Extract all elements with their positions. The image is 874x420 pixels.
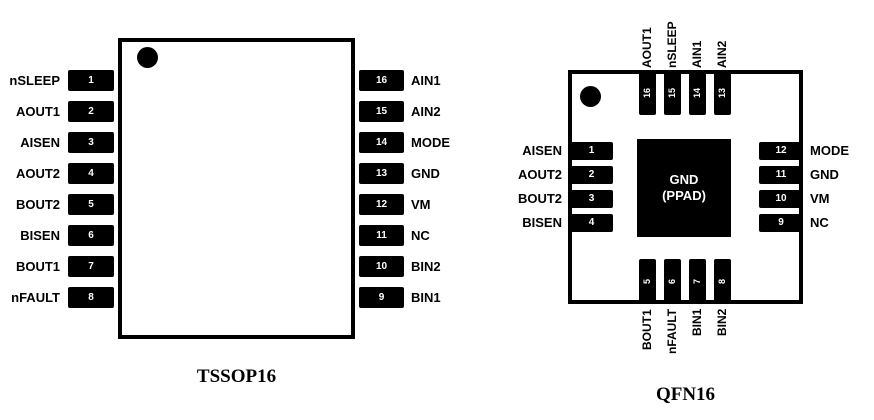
tssop-pin-10-box: 10: [359, 256, 404, 277]
tssop-pin-1-box: 1: [68, 70, 114, 91]
qfn-caption: QFN16: [568, 384, 803, 406]
qfn-pin-14-box: 14: [689, 71, 706, 115]
qfn-pin-9-box: 9: [759, 214, 803, 232]
tssop-pin-2-box: 2: [68, 101, 114, 122]
thermal-pad-line2: (PPAD): [662, 188, 706, 204]
qfn-pin-11-box: 11: [759, 166, 803, 184]
qfn-pin-4-label: BISEN: [460, 214, 562, 232]
tssop-pin-1-label: nSLEEP: [0, 70, 60, 91]
tssop-pin-2-label: AOUT1: [0, 101, 60, 122]
tssop-pin-7-label: BOUT1: [0, 256, 60, 277]
thermal-pad-line1: GND: [670, 172, 699, 188]
qfn-pin-15-box: 15: [664, 71, 681, 115]
qfn-pin-14-number: 14: [693, 88, 702, 98]
qfn-pin-14-label: AIN1: [689, 2, 706, 68]
tssop-pin-3-label: AISEN: [0, 132, 60, 153]
tssop-pin-9-label: BIN1: [411, 287, 441, 308]
qfn-pin-2-box: 2: [570, 166, 613, 184]
qfn-pin-5-label: BOUT1: [639, 309, 656, 381]
qfn-pin-9-label: NC: [810, 214, 829, 232]
tssop-pin-1-number: 1: [88, 76, 94, 86]
qfn-pin-8-box: 8: [714, 259, 731, 304]
tssop-pin-12-label: VM: [411, 194, 431, 215]
tssop-pin-13-number: 13: [376, 169, 387, 179]
tssop-pin-15-number: 15: [376, 107, 387, 117]
qfn-pin-16-box: 16: [639, 71, 656, 115]
qfn-pin-5-number: 5: [643, 279, 652, 284]
qfn-pin-11-label: GND: [810, 166, 839, 184]
tssop-pin-14-number: 14: [376, 138, 387, 148]
tssop-pin-16-label: AIN1: [411, 70, 441, 91]
qfn-pin-4-box: 4: [570, 214, 613, 232]
qfn-pin-2-label: AOUT2: [460, 166, 562, 184]
qfn-pin-1-label: AISEN: [460, 142, 562, 160]
qfn-pin-3-box: 3: [570, 190, 613, 208]
tssop-pin-11-box: 11: [359, 225, 404, 246]
tssop-pin-15-box: 15: [359, 101, 404, 122]
tssop-pin-6-label: BISEN: [0, 225, 60, 246]
tssop-pin-9-box: 9: [359, 287, 404, 308]
tssop-pin-4-number: 4: [88, 169, 94, 179]
qfn-pin-13-number: 13: [718, 88, 727, 98]
tssop-pin-11-label: NC: [411, 225, 430, 246]
qfn-pin-15-label: nSLEEP: [664, 2, 681, 68]
tssop-caption: TSSOP16: [118, 366, 355, 388]
qfn-pin-9-number: 9: [778, 218, 784, 228]
qfn-pin-16-number: 16: [643, 88, 652, 98]
qfn-pin-13-box: 13: [714, 71, 731, 115]
qfn-pin-3-number: 3: [589, 194, 595, 204]
tssop-pin-14-box: 14: [359, 132, 404, 153]
qfn-pin-10-label: VM: [810, 190, 830, 208]
qfn-pin-7-number: 7: [693, 279, 702, 284]
tssop-pin-12-box: 12: [359, 194, 404, 215]
qfn-pin-1-number: 1: [589, 146, 595, 156]
tssop-pin-3-box: 3: [68, 132, 114, 153]
qfn-pin-8-label: BIN2: [714, 309, 731, 381]
tssop-pin-2-number: 2: [88, 107, 94, 117]
tssop-pin-6-box: 6: [68, 225, 114, 246]
qfn-pin-16-label: AOUT1: [639, 2, 656, 68]
tssop-pin-13-box: 13: [359, 163, 404, 184]
tssop-pin-8-box: 8: [68, 287, 114, 308]
qfn-pin-7-label: BIN1: [689, 309, 706, 381]
tssop-pin-10-number: 10: [376, 262, 387, 272]
qfn-pin-11-number: 11: [776, 170, 787, 180]
tssop-pin-16-box: 16: [359, 70, 404, 91]
qfn-pin-3-label: BOUT2: [460, 190, 562, 208]
qfn-thermal-pad: GND (PPAD): [637, 139, 731, 237]
qfn-pin-15-number: 15: [668, 88, 677, 98]
qfn-pin-5-box: 5: [639, 259, 656, 304]
qfn-pin-6-box: 6: [664, 259, 681, 304]
qfn-pin-6-label: nFAULT: [664, 309, 681, 381]
tssop-pin-5-number: 5: [88, 200, 94, 210]
tssop-pin-3-number: 3: [88, 138, 94, 148]
qfn-pin-7-box: 7: [689, 259, 706, 304]
tssop-package-body: [118, 38, 355, 339]
tssop-pin-10-label: BIN2: [411, 256, 441, 277]
qfn-pin-10-number: 10: [775, 194, 786, 204]
qfn-pin-4-number: 4: [589, 218, 595, 228]
tssop-pin-9-number: 9: [379, 293, 385, 303]
tssop-pin-5-box: 5: [68, 194, 114, 215]
tssop-pin-4-box: 4: [68, 163, 114, 184]
qfn-pin-12-box: 12: [759, 142, 803, 160]
tssop-pin-8-label: nFAULT: [0, 287, 60, 308]
qfn-pin-6-number: 6: [668, 279, 677, 284]
tssop-pin-13-label: GND: [411, 163, 440, 184]
qfn-pin-12-label: MODE: [810, 142, 849, 160]
tssop-pin-11-number: 11: [376, 231, 387, 241]
tssop-pin-8-number: 8: [88, 293, 94, 303]
qfn-pin-13-label: AIN2: [714, 2, 731, 68]
tssop-pin-6-number: 6: [88, 231, 94, 241]
tssop-pin1-marker-dot: [137, 47, 158, 68]
qfn-pin-2-number: 2: [589, 170, 595, 180]
qfn-pin1-marker-dot: [580, 86, 601, 107]
qfn-pin-8-number: 8: [718, 279, 727, 284]
tssop-pin-12-number: 12: [376, 200, 387, 210]
tssop-pin-5-label: BOUT2: [0, 194, 60, 215]
tssop-pin-7-box: 7: [68, 256, 114, 277]
tssop-pin-4-label: AOUT2: [0, 163, 60, 184]
tssop-pin-16-number: 16: [376, 76, 387, 86]
qfn-pin-1-box: 1: [570, 142, 613, 160]
tssop-pin-7-number: 7: [88, 262, 94, 272]
tssop-pin-15-label: AIN2: [411, 101, 441, 122]
pinout-figure: nSLEEP 1 AOUT1 2 AISEN 3 AOUT2 4 BOUT2 5…: [0, 0, 874, 420]
tssop-pin-14-label: MODE: [411, 132, 450, 153]
qfn-pin-10-box: 10: [759, 190, 803, 208]
qfn-pin-12-number: 12: [775, 146, 786, 156]
